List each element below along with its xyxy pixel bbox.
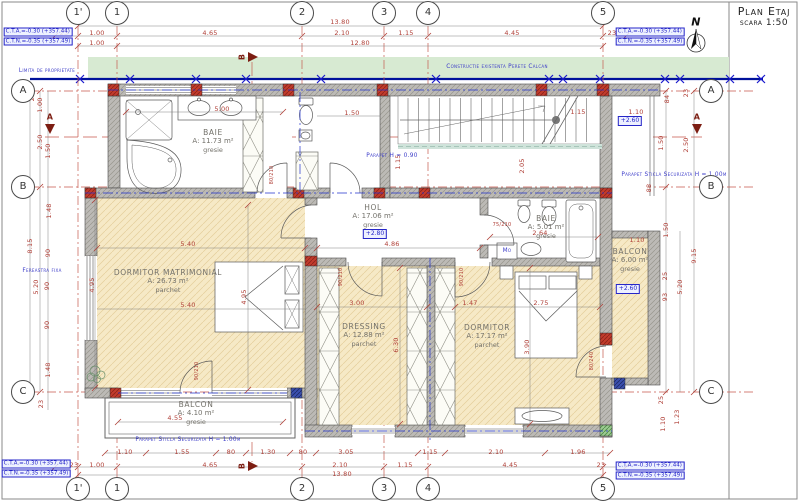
north-compass (687, 29, 705, 52)
toilet-bowl-2 (542, 207, 556, 226)
toilet-tank (299, 98, 313, 105)
floor-plan-sheet: Plan Etaj scara 1:50 13.80231.004.652.10… (0, 0, 800, 501)
nightstand-left (500, 266, 513, 279)
nightstand-right (579, 266, 592, 279)
sink-left (188, 101, 210, 116)
existing-construction-band (88, 57, 729, 79)
bed-matrimonial (215, 262, 303, 332)
toilet-tank-2 (542, 200, 556, 207)
staircase (398, 96, 602, 149)
baie2-sink (521, 243, 541, 256)
chest (515, 408, 569, 424)
washing-machine (497, 243, 517, 259)
plan-drawing (0, 0, 800, 501)
balcon-jos-parapet (105, 398, 295, 438)
bidet (518, 206, 530, 223)
sink-right (220, 101, 242, 116)
toilet-bowl (300, 106, 313, 125)
